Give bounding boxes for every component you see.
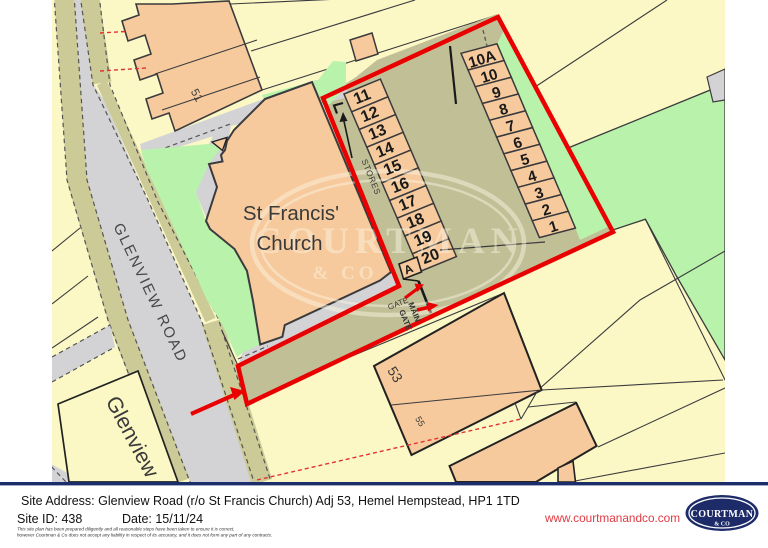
svg-text:COURTMAN: COURTMAN (691, 509, 754, 520)
svg-text:& CO: & CO (312, 263, 377, 284)
svg-text:Church: Church (256, 232, 322, 255)
svg-text:Site ID: 438: Site ID: 438 (17, 512, 82, 526)
svg-text:St Francis': St Francis' (243, 202, 339, 225)
svg-text:however Courtman & Co does not: however Courtman & Co does not accept an… (17, 533, 272, 538)
svg-text:Date: 15/11/24: Date: 15/11/24 (122, 512, 203, 526)
svg-text:& CO: & CO (714, 522, 730, 528)
svg-text:www.courtmanandco.com: www.courtmanandco.com (544, 511, 680, 525)
svg-text:This site plan has been prepar: This site plan has been prepared diligen… (17, 527, 235, 532)
svg-text:Site Address: Glenview Road (r: Site Address: Glenview Road (r/o St Fran… (21, 494, 520, 508)
